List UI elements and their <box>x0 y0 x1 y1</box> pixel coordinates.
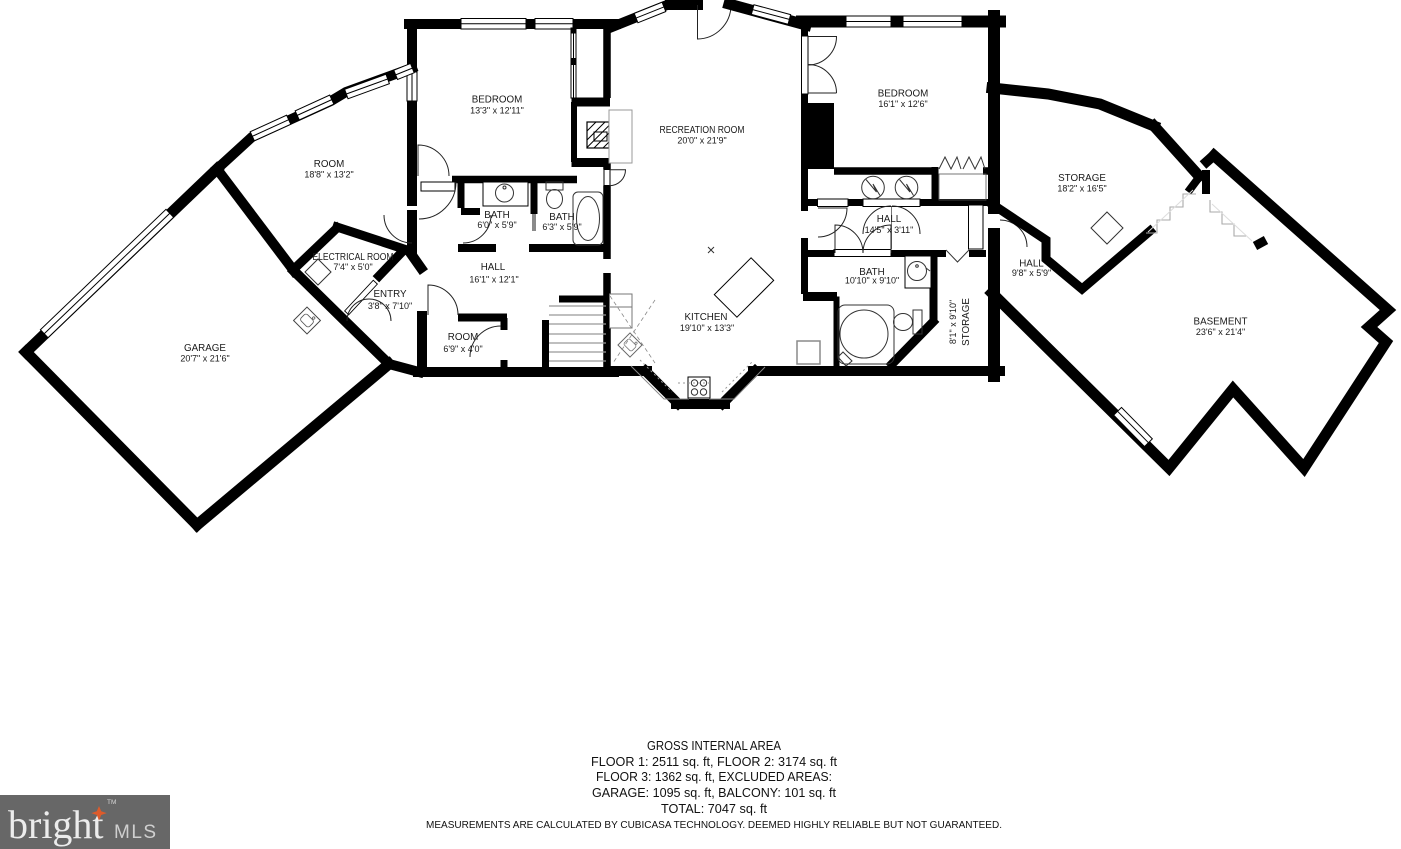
svg-text:16'1" x 12'1": 16'1" x 12'1" <box>469 275 518 285</box>
svg-text:7'4" x 5'0": 7'4" x 5'0" <box>333 262 372 272</box>
svg-text:TOTAL: 7047 sq. ft: TOTAL: 7047 sq. ft <box>661 801 767 816</box>
svg-text:18'8" x 13'2": 18'8" x 13'2" <box>304 170 353 180</box>
svg-text:MEASUREMENTS ARE CALCULATED BY: MEASUREMENTS ARE CALCULATED BY CUBICASA … <box>426 820 1002 831</box>
svg-text:10'10" x 9'10": 10'10" x 9'10" <box>845 276 899 286</box>
svg-text:BEDROOM: BEDROOM <box>472 95 523 106</box>
svg-text:6'9" x 4'0": 6'9" x 4'0" <box>443 344 482 354</box>
svg-text:23'6" x 21'4": 23'6" x 21'4" <box>1196 327 1245 337</box>
svg-text:18'2" x 16'5": 18'2" x 16'5" <box>1057 184 1106 194</box>
svg-text:FLOOR 1: 2511 sq. ft, FLOOR 2:: FLOOR 1: 2511 sq. ft, FLOOR 2: 3174 sq. … <box>591 754 837 769</box>
svg-text:GARAGE: GARAGE <box>184 343 226 354</box>
svg-text:3'8" x 7'10": 3'8" x 7'10" <box>368 301 412 311</box>
svg-text:RECREATION ROOM: RECREATION ROOM <box>660 125 745 136</box>
svg-text:GARAGE: 1095 sq. ft, BALCONY:: GARAGE: 1095 sq. ft, BALCONY: 101 sq. ft <box>592 785 836 800</box>
svg-text:14'5" x 3'11": 14'5" x 3'11" <box>865 225 914 235</box>
svg-text:HALL: HALL <box>877 214 902 225</box>
svg-text:ENTRY: ENTRY <box>373 289 406 300</box>
svg-text:STORAGE: STORAGE <box>1058 173 1106 184</box>
svg-text:KITCHEN: KITCHEN <box>684 312 727 323</box>
svg-text:HALL: HALL <box>481 262 506 273</box>
svg-text:16'1" x 12'6": 16'1" x 12'6" <box>878 99 927 109</box>
svg-text:20'0" x 21'9": 20'0" x 21'9" <box>677 136 726 146</box>
svg-text:BEDROOM: BEDROOM <box>878 89 929 100</box>
svg-text:13'3" x 12'11": 13'3" x 12'11" <box>470 106 524 116</box>
svg-text:bright: bright <box>8 802 104 847</box>
svg-text:6'3" x 5'9": 6'3" x 5'9" <box>542 222 581 232</box>
svg-text:BASEMENT: BASEMENT <box>1194 317 1248 328</box>
svg-text:19'10" x 13'3": 19'10" x 13'3" <box>680 323 734 333</box>
svg-text:FLOOR 3: 1362 sq. ft, EXCLUDED: FLOOR 3: 1362 sq. ft, EXCLUDED AREAS: <box>596 769 832 784</box>
svg-text:TM: TM <box>107 799 116 806</box>
svg-text:ROOM: ROOM <box>314 159 344 170</box>
svg-text:MLS: MLS <box>114 822 158 843</box>
svg-text:8'1" x 9'10": 8'1" x 9'10" <box>948 300 958 344</box>
svg-text:GROSS INTERNAL AREA: GROSS INTERNAL AREA <box>647 738 781 753</box>
svg-text:STORAGE: STORAGE <box>961 298 972 346</box>
svg-text:6'0" x 5'9": 6'0" x 5'9" <box>477 220 516 230</box>
svg-text:9'8" x 5'9": 9'8" x 5'9" <box>1012 268 1051 278</box>
svg-text:20'7" x 21'6": 20'7" x 21'6" <box>180 354 229 364</box>
svg-text:ROOM: ROOM <box>448 332 478 343</box>
